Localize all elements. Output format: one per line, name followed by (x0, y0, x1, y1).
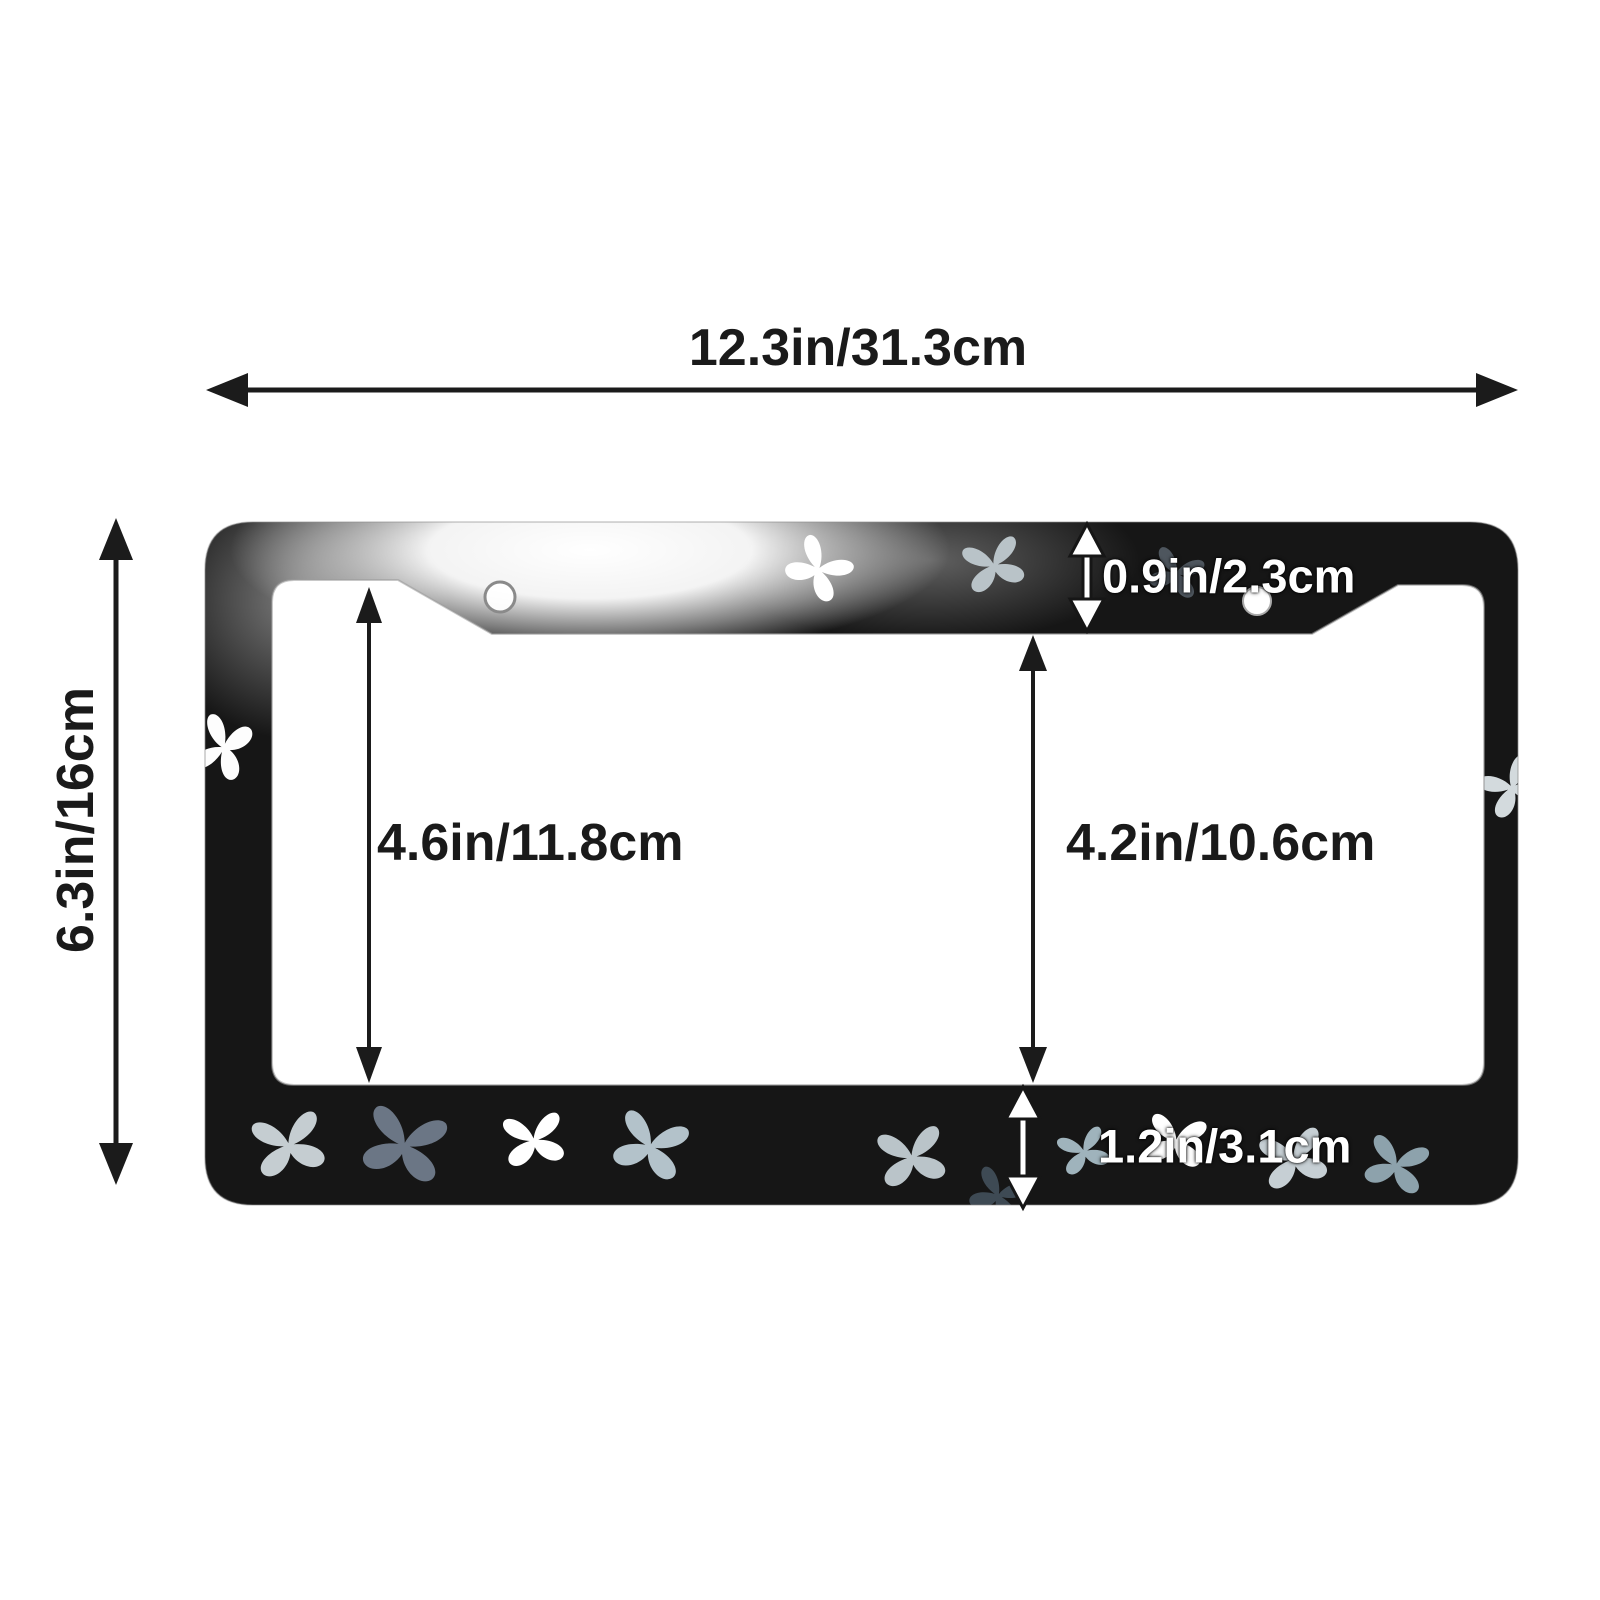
glare-highlight (150, 442, 1140, 740)
overall-height-label: 6.3in/16cm (46, 687, 106, 953)
top-bar-height-label: 0.9in/2.3cm (1102, 549, 1355, 604)
bottom-bar-height-label: 1.2in/3.1cm (1098, 1119, 1351, 1174)
license-plate-frame-image (0, 0, 1600, 1600)
left-opening-height-label: 4.6in/11.8cm (377, 813, 683, 873)
overall-width-label: 12.3in/31.3cm (689, 318, 1027, 378)
product-dimension-diagram: 12.3in/31.3cm 6.3in/16cm 4.6in/11.8cm 4.… (0, 0, 1600, 1600)
screw-hole (485, 582, 515, 612)
right-opening-height-label: 4.2in/10.6cm (1066, 813, 1375, 873)
